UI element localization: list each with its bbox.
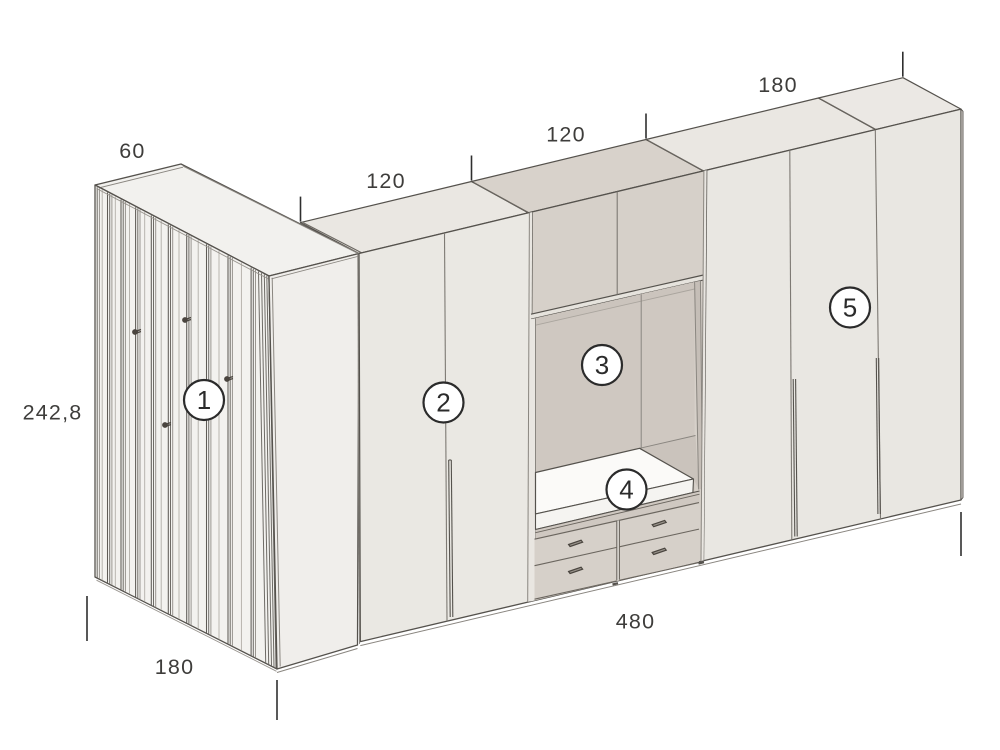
svg-text:180: 180 <box>758 73 797 97</box>
svg-text:4: 4 <box>619 475 633 505</box>
svg-text:5: 5 <box>843 293 857 323</box>
svg-text:180: 180 <box>155 655 194 679</box>
svg-text:242,8: 242,8 <box>23 401 83 425</box>
svg-text:60: 60 <box>119 139 145 163</box>
svg-text:3: 3 <box>595 350 609 380</box>
svg-text:1: 1 <box>197 385 211 415</box>
svg-text:2: 2 <box>436 388 450 418</box>
svg-text:120: 120 <box>546 123 585 147</box>
svg-text:480: 480 <box>616 610 655 634</box>
svg-text:120: 120 <box>366 169 405 193</box>
